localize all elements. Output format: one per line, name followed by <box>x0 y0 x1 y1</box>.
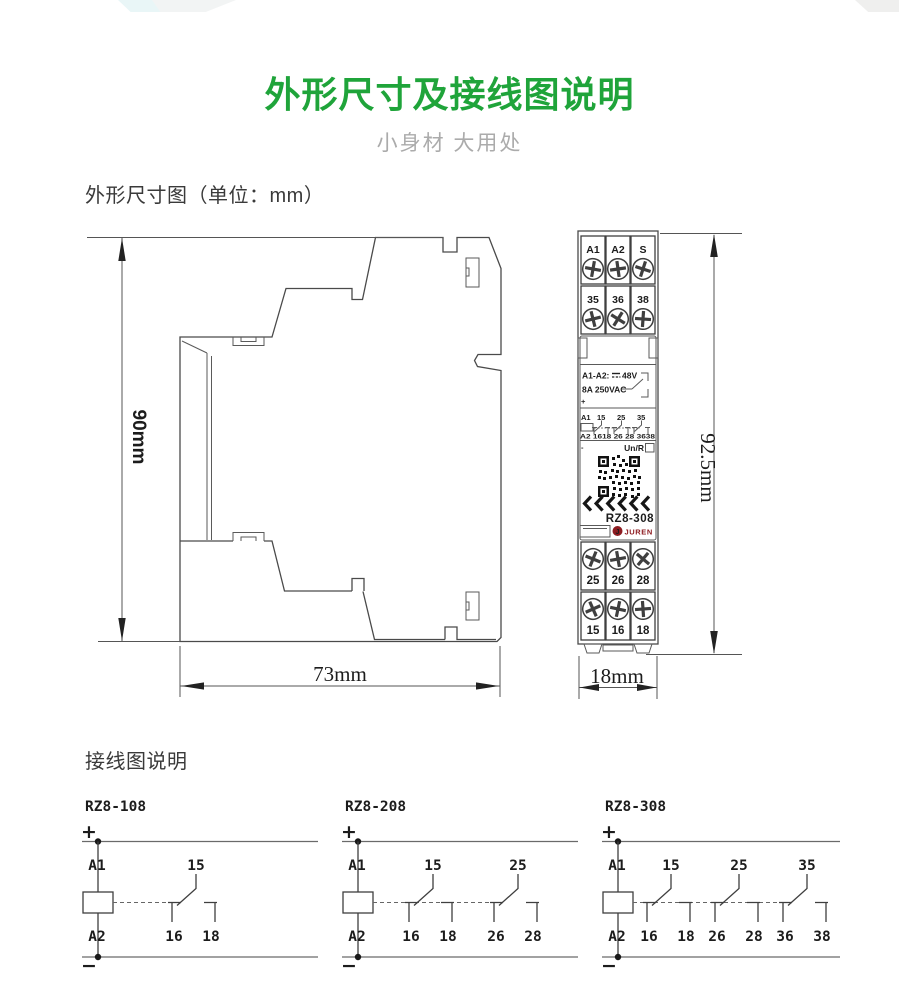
wiring-model-label: RZ8-308 <box>605 799 666 815</box>
front-width-label: 18mm <box>590 664 644 688</box>
terminal-label: 25 <box>587 575 600 587</box>
brand-logo: J JUREN <box>613 526 653 537</box>
contact-nc-label: 16 <box>640 929 657 945</box>
device-model-label: RZ8-308 <box>606 513 654 525</box>
wiring-diagram-rz8-308: RZ8-308 + A1 A2 − 15 16 18 25 <box>601 799 840 977</box>
coil-terminal-label: A1 <box>348 858 366 874</box>
contact-no-label: 38 <box>813 929 830 945</box>
terminal-label: 38 <box>637 294 649 306</box>
coil-terminal-label: A1 <box>608 858 626 874</box>
contact-no-label: 28 <box>745 929 762 945</box>
terminal-label: 18 <box>637 625 650 637</box>
contact-group: 25 26 28 <box>487 858 541 945</box>
front-bottom-terminal-row2: 15 16 18 <box>579 592 655 640</box>
mini-bottom-label: A2 1618 26 28 3638 <box>580 434 655 441</box>
coil-terminal-label: A2 <box>348 929 365 945</box>
contact-com-label: 25 <box>509 858 526 874</box>
minus-symbol: − <box>81 955 97 977</box>
contact-no-label: 18 <box>202 929 219 945</box>
contact-no-label: 18 <box>677 929 694 945</box>
side-width-label: 73mm <box>313 662 367 686</box>
technical-drawing-canvas: 90mm 73mm A1 A2 S <box>0 0 899 1000</box>
wiring-diagram-rz8-208: RZ8-208 + A1 A2 − 15 16 18 25 <box>341 799 578 977</box>
brand-name: JUREN <box>625 528 653 537</box>
contact-com-label: 15 <box>424 858 441 874</box>
chevrons-left-icon <box>585 497 650 511</box>
front-bottom-terminal-row1: 25 26 28 <box>580 542 658 590</box>
terminal-label: A2 <box>611 244 625 256</box>
rating-prefix: A1-A2: <box>582 371 610 381</box>
front-top-terminal-row1: A1 A2 S <box>581 236 656 284</box>
minus-symbol: − <box>341 955 357 977</box>
contact-group: 25 26 28 <box>708 858 762 945</box>
dimension-front-height: 92.5mm <box>646 234 742 655</box>
qr-code <box>598 455 641 498</box>
front-view-feet <box>584 644 652 653</box>
minus-symbol: − <box>601 955 617 977</box>
dc-symbol-icon <box>612 374 621 378</box>
terminal-label: 15 <box>587 625 600 637</box>
front-label-panel: A1-A2: 48V 8A 250VAC + A1 15 25 35 <box>580 336 656 540</box>
contact-nc-label: 26 <box>487 929 504 945</box>
terminal-label: 16 <box>612 625 625 637</box>
side-view-drawing <box>180 238 501 642</box>
page: 外形尺寸及接线图说明 小身材 大用处 外形尺寸图（单位：mm） 接线图说明 <box>0 0 899 1000</box>
coil-terminal-label: A2 <box>88 929 105 945</box>
terminal-label: 26 <box>612 575 625 587</box>
contact-nc-label: 16 <box>165 929 182 945</box>
contact-group: 15 16 18 <box>165 858 219 945</box>
un-r-label: Un/R <box>624 443 644 453</box>
wiring-model-label: RZ8-208 <box>345 799 406 815</box>
terminal-label: S <box>639 244 646 256</box>
contact-nc-label: 36 <box>776 929 793 945</box>
coil-terminal-label: A2 <box>608 929 625 945</box>
contact-no-label: 28 <box>524 929 541 945</box>
plus-symbol: + <box>341 821 357 843</box>
dimension-side-width: 73mm <box>180 646 500 697</box>
contact-group: 15 16 18 <box>640 858 694 945</box>
screw-terminal-icon <box>632 308 654 330</box>
contact-group: 15 16 18 <box>402 858 456 945</box>
plus-symbol: + <box>81 821 97 843</box>
contact-com-label: 35 <box>798 858 815 874</box>
dimension-front-width: 18mm <box>579 656 657 699</box>
terminal-label: 28 <box>637 575 650 587</box>
brand-logo-mark: J <box>616 529 620 536</box>
wiring-diagram-rz8-108: RZ8-108 + A1 A2 − 15 16 18 <box>81 799 318 977</box>
polarity-plus-mark: + <box>581 397 586 406</box>
rating-voltage: 48V <box>622 371 637 381</box>
terminal-label: 36 <box>612 294 624 306</box>
contact-com-label: 15 <box>662 858 679 874</box>
mini-label: A1 <box>581 413 591 422</box>
contact-com-label: 25 <box>730 858 747 874</box>
front-view-drawing: A1 A2 S 35 36 38 <box>578 231 658 653</box>
rating-contact: 8A 250VAC <box>582 385 626 395</box>
contact-no-label: 18 <box>439 929 456 945</box>
plus-symbol: + <box>601 821 617 843</box>
screw-terminal-icon <box>632 598 654 620</box>
wiring-model-label: RZ8-108 <box>85 799 146 815</box>
front-top-terminal-row2: 35 36 38 <box>581 286 655 334</box>
terminal-label: A1 <box>586 244 600 256</box>
contact-nc-label: 26 <box>708 929 725 945</box>
polarity-minus-mark: - <box>581 443 584 452</box>
terminal-label: 35 <box>587 294 599 306</box>
contact-nc-label: 16 <box>402 929 419 945</box>
front-height-label: 92.5mm <box>696 433 720 502</box>
contact-com-label: 15 <box>187 858 204 874</box>
coil-terminal-label: A1 <box>88 858 106 874</box>
mini-wiring-diagram: A1 15 25 35 A2 1618 26 28 3638 <box>580 413 655 441</box>
dimension-side-height: 90mm <box>87 238 443 642</box>
contact-group: 35 36 38 <box>776 858 830 945</box>
side-height-label: 90mm <box>128 410 149 465</box>
